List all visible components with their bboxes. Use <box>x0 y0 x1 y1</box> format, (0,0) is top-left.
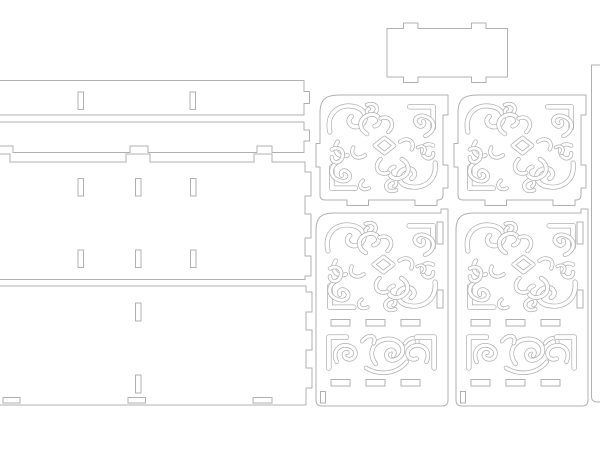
panel-bottom-long-panel <box>0 286 312 405</box>
panel-tall-filigree-right <box>456 209 588 406</box>
panel-square-filigree-right <box>454 95 586 206</box>
middle-long-panel-outline <box>0 154 311 280</box>
second-rail-outline <box>0 122 310 153</box>
laser-cut-template-sheet <box>0 0 600 450</box>
panel-square-filigree-left <box>316 95 448 206</box>
panel-tall-filigree-left <box>316 209 448 406</box>
right-edge-strip-outline <box>592 65 600 402</box>
bottom-long-panel-outline <box>0 286 312 405</box>
panel-top-rail <box>0 81 310 116</box>
panel-middle-long-panel <box>0 154 311 280</box>
laser-cut-sheet <box>0 0 600 450</box>
top-rail-outline <box>0 81 310 116</box>
panel-second-rail <box>0 122 310 153</box>
panel-right-edge-strip <box>592 65 600 402</box>
small-tabbed-panel-outline <box>387 23 508 83</box>
panel-small-tabbed-panel <box>387 23 508 83</box>
